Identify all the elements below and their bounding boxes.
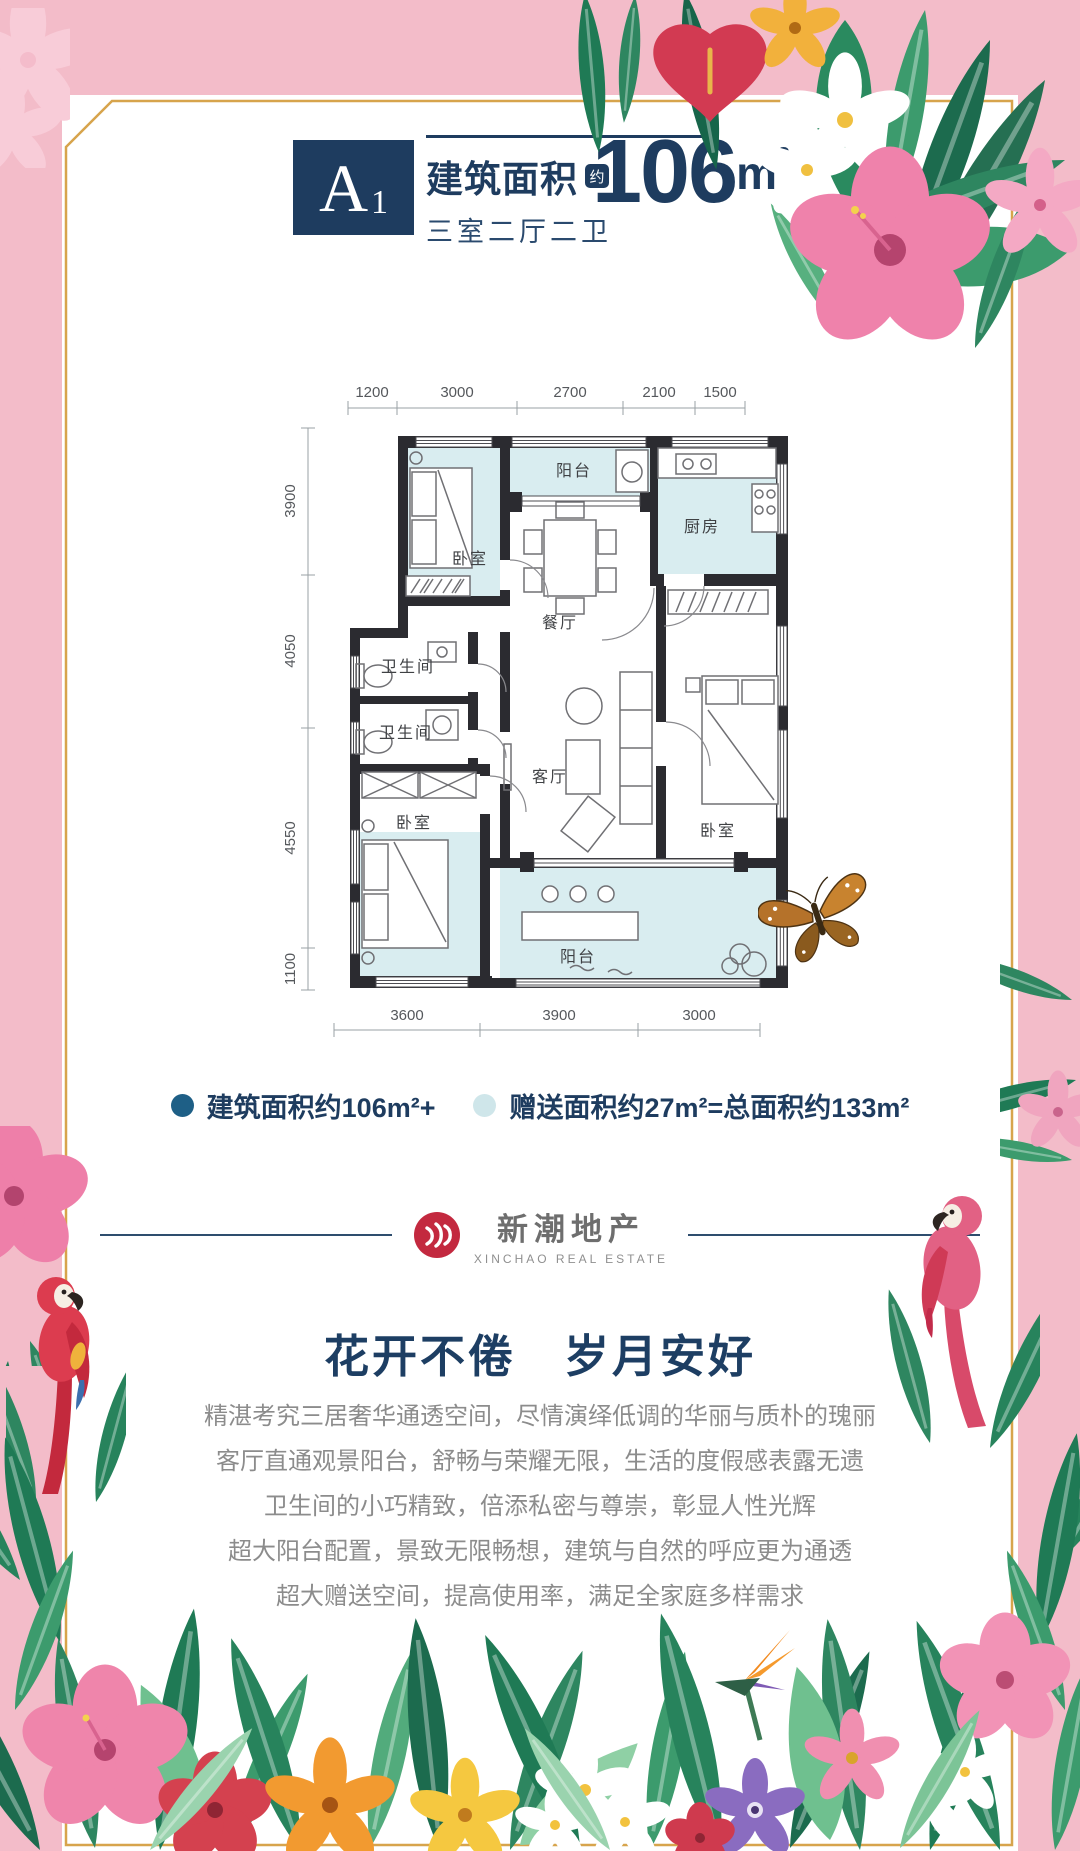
logo-name-en: XINCHAO REAL ESTATE: [474, 1252, 668, 1266]
logo-divider-right: [688, 1234, 980, 1236]
floor-plan: 1200 3000 2700 2100 1500 3900 4050 4550 …: [278, 380, 798, 1040]
brand-logo-row: 新潮地产 XINCHAO REAL ESTATE: [0, 1204, 1080, 1266]
area-value: 106 m 2: [592, 130, 790, 216]
dim-label: 3000: [682, 1007, 715, 1024]
room-label-dining: 餐厅: [542, 614, 578, 632]
legend-gift-area: 赠送面积约27m²=总面积约133m²: [509, 1086, 909, 1125]
dim-label: 3900: [542, 1007, 575, 1024]
description-line: 超大赠送空间，提高使用率，满足全家庭多样需求: [0, 1574, 1080, 1619]
area-legend: 建筑面积约106m²+ 赠送面积约27m²=总面积约133m²: [0, 1086, 1080, 1125]
dim-label: 4550: [282, 821, 299, 854]
legend-dot-built-area: [171, 1094, 194, 1117]
description-block: 精湛考究三居奢华通透空间，尽情演绎低调的华丽与质朴的瑰丽 客厅直通观景阳台，舒畅…: [0, 1394, 1080, 1619]
dim-label: 2700: [553, 384, 586, 401]
unit-letter: A: [319, 154, 368, 222]
slogan-title: 花开不倦 岁月安好: [0, 1320, 1080, 1385]
dimension-bottom: 3600 3900 3000: [334, 1007, 760, 1037]
unit-type-badge: A 1: [293, 140, 414, 235]
dimension-top: 1200 3000 2700 2100 1500: [348, 384, 745, 415]
room-label-bedroom-left: 卧室: [396, 814, 432, 832]
area-unit: m: [736, 146, 777, 200]
dim-label: 3600: [390, 1007, 423, 1024]
room-label-bedroom-right: 卧室: [700, 822, 736, 840]
dim-label: 4050: [282, 634, 299, 667]
description-line: 超大阳台配置，景致无限畅想，建筑与自然的呼应更为通透: [0, 1529, 1080, 1574]
dim-label: 1200: [355, 384, 388, 401]
logo-name-cn: 新潮地产: [497, 1204, 645, 1249]
dim-label: 1500: [703, 384, 736, 401]
real-estate-poster: A 1 建筑面积 约 三室二厅二卫 106 m 2: [0, 0, 1080, 1851]
area-number: 106: [592, 130, 736, 216]
description-line: 精湛考究三居奢华通透空间，尽情演绎低调的华丽与质朴的瑰丽: [0, 1394, 1080, 1439]
area-unit-sup: 2: [777, 142, 790, 169]
header-text: 建筑面积 约 三室二厅二卫: [426, 149, 612, 249]
watermark-flower: [0, 8, 70, 168]
room-label-bedroom-top: 卧室: [452, 550, 488, 568]
layout-label: 三室二厅二卫: [426, 210, 612, 249]
room-label-kitchen: 厨房: [684, 518, 720, 536]
legend-built-area: 建筑面积约106m²+: [207, 1086, 436, 1125]
description-line: 客厅直通观景阳台，舒畅与荣耀无限，生活的度假感表露无遗: [0, 1439, 1080, 1484]
room-label-balcony-top: 阳台: [556, 462, 592, 480]
dim-label: 3900: [282, 484, 299, 517]
area-label: 建筑面积: [426, 149, 578, 203]
room-label-bath1: 卫生间: [381, 658, 435, 676]
legend-dot-gift-area: [473, 1094, 496, 1117]
dimension-left: 3900 4050 4550 1100: [282, 428, 315, 990]
unit-number: 1: [371, 186, 388, 220]
xinchao-logo-icon: [412, 1210, 462, 1260]
dim-label: 3000: [440, 384, 473, 401]
room-label-balcony-bottom: 阳台: [560, 948, 596, 966]
yellow-flower: [747, 0, 843, 73]
dim-label: 2100: [642, 384, 675, 401]
logo-divider-left: [100, 1234, 392, 1236]
description-line: 卫生间的小巧精致，倍添私密与尊崇，彰显人性光辉: [0, 1484, 1080, 1529]
dim-label: 1100: [282, 953, 299, 985]
room-label-living: 客厅: [532, 768, 568, 786]
room-label-bath2: 卫生间: [379, 724, 433, 742]
